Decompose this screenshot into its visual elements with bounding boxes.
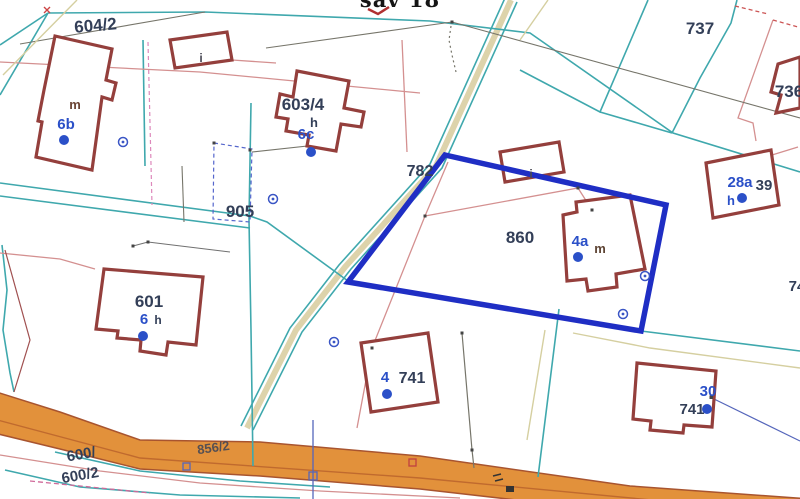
cadastral-map-viewport[interactable]: 604/2 737 736 603/4 782 905 860 601 39 7… (0, 0, 800, 499)
survey-point (461, 332, 464, 335)
parcel-label-741-center: 741 (399, 370, 426, 387)
boundary-line (735, 6, 768, 14)
boundary-line (249, 103, 253, 466)
road-symbol (506, 486, 514, 492)
house-number-6c: 6c (298, 126, 315, 143)
survey-line (527, 330, 545, 440)
survey-point (213, 142, 216, 145)
house-number-4a: 4a (572, 233, 589, 250)
survey-line (520, 0, 548, 40)
house-letter-i: i (529, 167, 532, 181)
survey-point (424, 215, 427, 218)
house-number-dot (702, 404, 712, 414)
house-number-30: 30 (700, 383, 717, 400)
parcel-label-600-2: 600/2 (60, 464, 100, 487)
house-letter-m: m (69, 97, 81, 112)
parcel-number-labels: 604/2 737 736 603/4 782 905 860 601 39 7… (60, 14, 800, 487)
boundary-line (772, 147, 798, 155)
house-number-dot (59, 135, 69, 145)
boundary-line (0, 183, 348, 281)
boundary-line (738, 20, 773, 141)
boundary-line (773, 20, 798, 27)
house-letter-m: m (594, 241, 606, 256)
house-number-dot (573, 252, 583, 262)
survey-point (577, 187, 580, 190)
house-number-4: 4 (381, 369, 390, 386)
house-letter-i: i (199, 51, 202, 65)
parcel-label-604-2: 604/2 (74, 14, 118, 37)
map-canvas: 604/2 737 736 603/4 782 905 860 601 39 7… (0, 0, 800, 499)
parcel-label-603-4: 603/4 (282, 95, 325, 114)
survey-point (147, 241, 150, 244)
house-number-dot (306, 147, 316, 157)
map-title-cropped: šav 18 (340, 0, 460, 12)
survey-line (712, 398, 800, 441)
control-point-dot (333, 341, 336, 344)
survey-point (591, 209, 594, 212)
survey-line (5, 250, 30, 392)
survey-line (449, 26, 456, 72)
survey-line (182, 166, 184, 222)
parcel-label-39: 39 (756, 177, 773, 194)
parcel-label-860: 860 (506, 228, 534, 247)
boundary-line (402, 40, 407, 152)
survey-point (471, 449, 474, 452)
parcel-label-736: 736 (775, 82, 800, 101)
parcel-label-737: 737 (686, 19, 714, 38)
survey-point (249, 149, 252, 152)
house-number-dot (737, 193, 747, 203)
boundary-line (641, 331, 800, 351)
parcel-label-782: 782 (407, 163, 434, 180)
boundary-line (2, 245, 14, 392)
boundary-line (520, 0, 648, 112)
survey-point (451, 21, 454, 24)
parcel-label-601: 601 (135, 292, 163, 311)
control-point-dot (622, 313, 625, 316)
building-outline-601 (96, 269, 203, 355)
house-number-28a: 28a (727, 174, 753, 191)
boundary-line (143, 40, 145, 166)
house-number-6b: 6b (57, 116, 75, 133)
control-point-dot (122, 141, 125, 144)
boundary-line (0, 253, 95, 269)
survey-line (148, 42, 152, 205)
survey-line (462, 333, 474, 468)
boundary-line (425, 188, 592, 216)
survey-point (132, 245, 135, 248)
control-point-dot (644, 275, 647, 278)
parcel-label-905: 905 (226, 202, 254, 221)
boundary-line (600, 112, 672, 133)
house-number-6: 6 (140, 311, 148, 328)
survey-point (371, 347, 374, 350)
parcel-label-741-right: 741 (679, 401, 704, 418)
control-point-dot (272, 198, 275, 201)
boundary-line (232, 60, 276, 63)
survey-line (573, 333, 800, 368)
boundary-line (538, 309, 559, 477)
parcel-label-74: 74 (789, 278, 800, 295)
house-number-dot (382, 389, 392, 399)
house-number-dot (138, 331, 148, 341)
house-letter-h: h (154, 313, 161, 327)
cross-marker (44, 7, 50, 13)
house-letter-h: h (727, 193, 735, 208)
